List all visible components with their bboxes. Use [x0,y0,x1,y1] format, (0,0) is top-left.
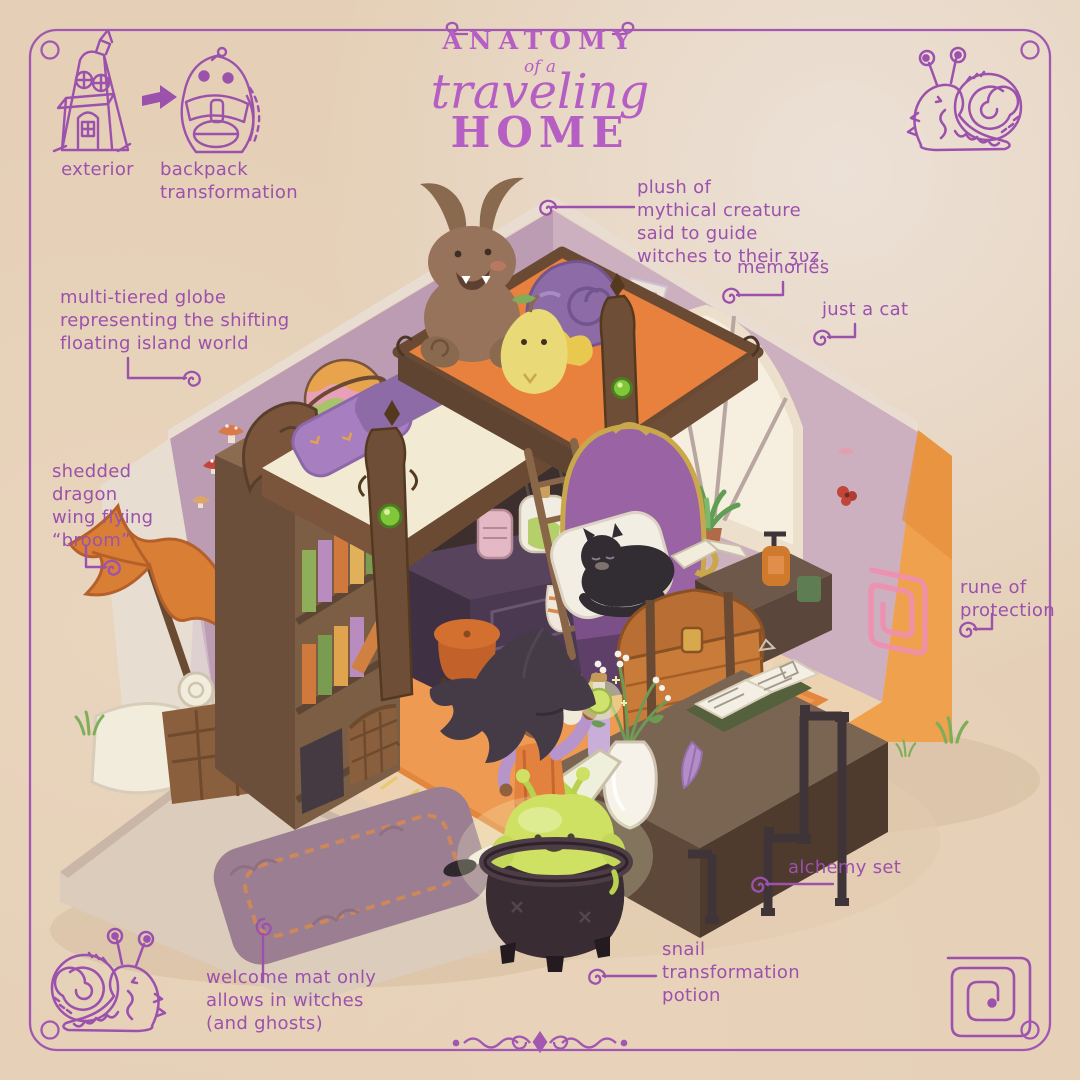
label-exterior: exterior [40,158,155,181]
connector-globe [128,358,186,378]
connector-cat [828,324,855,337]
annotation-alchemy: alchemy set [788,856,901,879]
label-backpack: backpack transformation [160,158,298,204]
annotation-dragon-wing: shedded dragon wing flying “broom” [52,460,153,552]
title-anatomy: ANATOMY [0,26,1080,55]
annotation-welcome-mat: welcome mat only allows in witches (and … [206,966,376,1035]
green-cup [797,576,821,602]
annotation-snail-potion: snail transformation potion [662,938,800,1007]
annotation-plush: plush of mythical creature said to guide… [637,176,825,268]
title-block: ANATOMY of a traveling HOME [0,26,1080,154]
annotation-just-a-cat: just a cat [822,298,908,321]
annotation-globe: multi-tiered globe representing the shif… [60,286,290,355]
annotation-memories: memories [737,256,829,279]
bottom-flourish [454,1033,626,1051]
title-home: HOME [0,112,1080,154]
annotation-rune: rune of protection [960,576,1055,622]
spiral-rune-sketch [948,958,1030,1036]
poster: ANATOMY of a traveling HOME exterior bac… [0,0,1080,1080]
connector-memories [737,282,783,295]
